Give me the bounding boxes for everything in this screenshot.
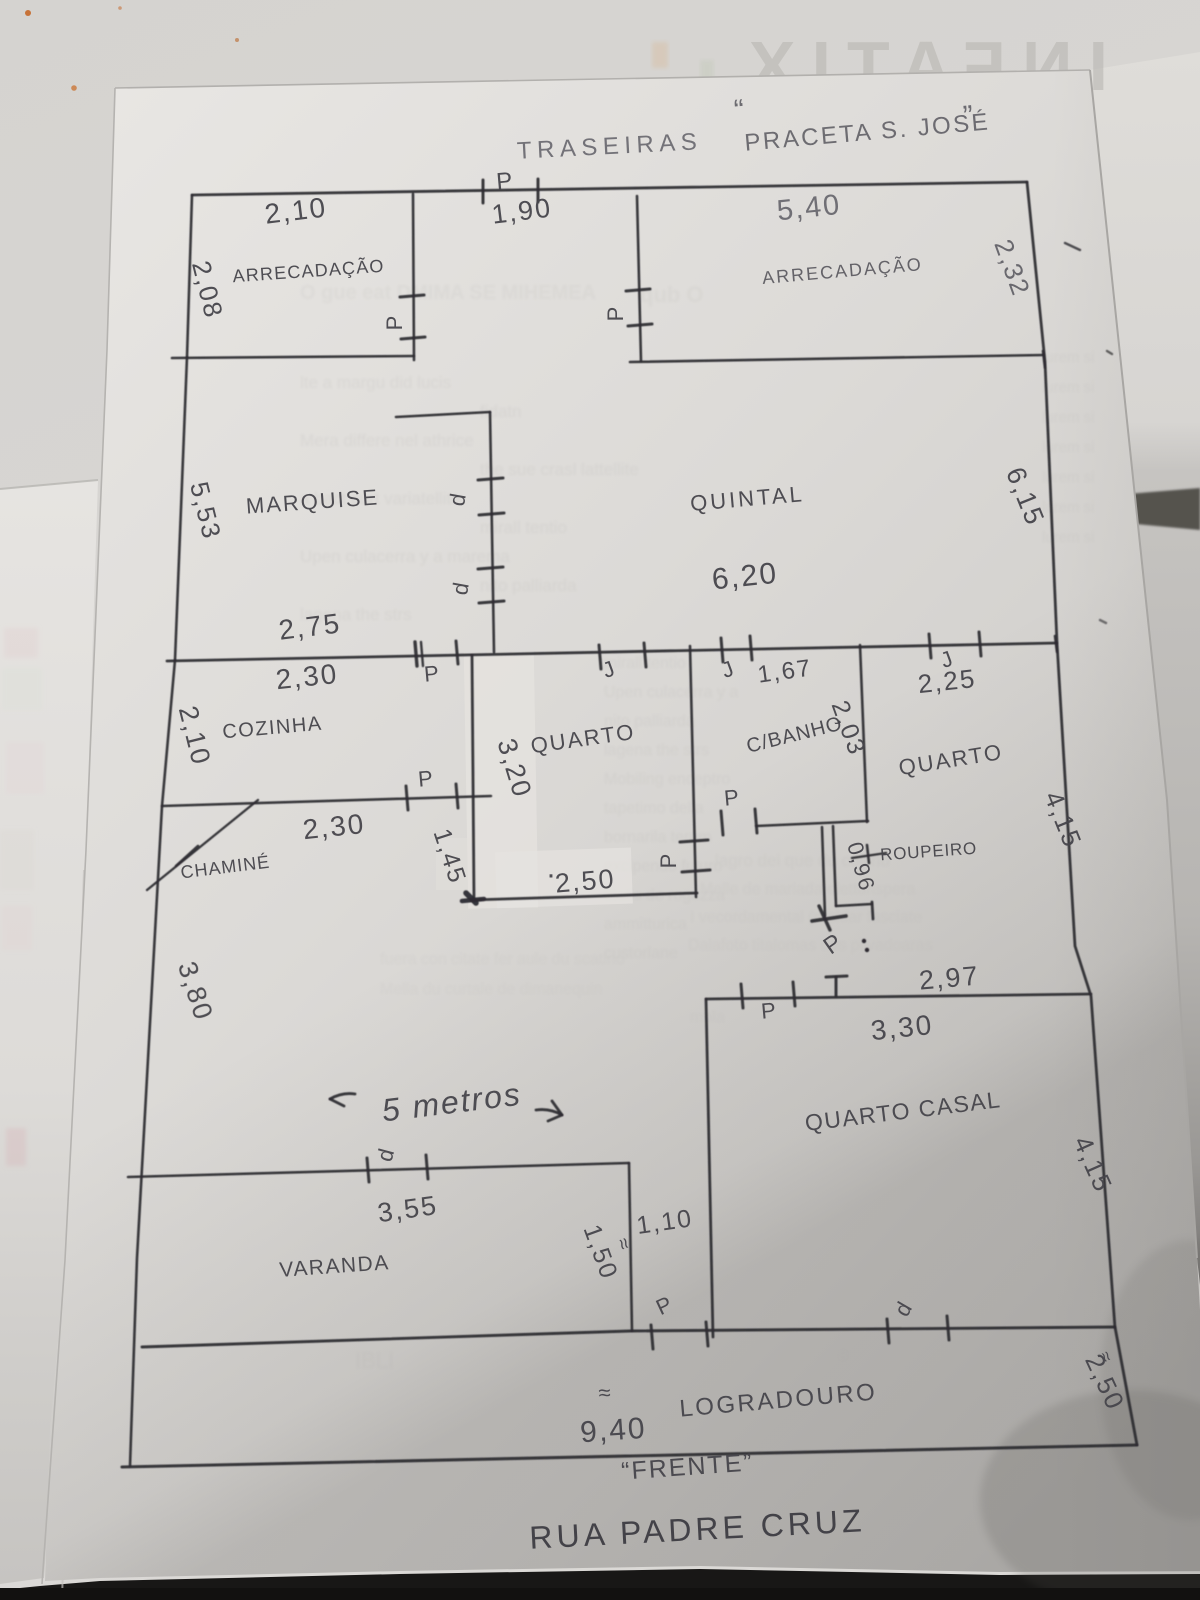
svg-text:P: P — [760, 997, 779, 1023]
svg-text:P: P — [382, 314, 407, 331]
svg-text:P: P — [656, 852, 681, 869]
svg-text:lurem si: lurem si — [1042, 349, 1095, 366]
svg-text:2,30: 2,30 — [301, 808, 366, 845]
svg-text:3,30: 3,30 — [869, 1009, 934, 1046]
svg-text:Upen culacerra y a: Upen culacerra y a — [604, 684, 738, 701]
svg-text:ammitturica: ammitturica — [604, 916, 687, 933]
svg-text:Mera differe nel athrice: Mera differe nel athrice — [300, 431, 474, 450]
svg-text:·: · — [546, 858, 558, 891]
svg-text:nito palliarda: nito palliarda — [480, 576, 577, 595]
svg-text:2,97: 2,97 — [918, 960, 981, 995]
svg-text:P: P — [603, 305, 628, 322]
svg-text:Melle de mariada eletturispera: Melle de mariada eletturispera — [700, 881, 915, 898]
svg-text:5,40: 5,40 — [775, 189, 842, 228]
svg-text:lurem si: lurem si — [1042, 379, 1095, 396]
svg-text:the sue crasl lattellite: the sue crasl lattellite — [480, 460, 639, 479]
svg-text:6,20: 6,20 — [710, 557, 779, 597]
svg-text:IBLI: IBLI — [355, 1348, 394, 1373]
svg-text:≈: ≈ — [598, 1380, 614, 1406]
svg-text:Mella du curtale de dimanequin: Mella du curtale de dimanequin — [380, 981, 602, 998]
svg-text:I vecordamental (moldar fascia: I vecordamental (moldar fasciate — [690, 909, 922, 926]
svg-text:qub O: qub O — [640, 282, 704, 307]
svg-text:2,50: 2,50 — [554, 863, 617, 898]
svg-text:fuera con citate fer aule du s: fuera con citate fer aule du scatino — [380, 951, 625, 968]
svg-text:lurem si: lurem si — [1042, 409, 1095, 426]
svg-text:Mobiling enceptro: Mobiling enceptro — [604, 771, 730, 788]
svg-text:P: P — [723, 784, 742, 810]
svg-text:9,40: 9,40 — [579, 1412, 648, 1450]
svg-text:lte a margu did lucis: lte a margu did lucis — [300, 373, 451, 392]
svg-text:tapetimo della: tapetimo della — [604, 800, 704, 817]
svg-text:Dalafoto titalomas dos pilvado: Dalafoto titalomas dos pilvadoaras — [688, 937, 933, 954]
svg-text:P: P — [417, 765, 436, 791]
svg-text:2,30: 2,30 — [274, 658, 339, 695]
svg-text:P: P — [423, 660, 442, 686]
svg-text:lurem si: lurem si — [1042, 529, 1095, 546]
svg-text:P: P — [495, 167, 515, 195]
svg-text:o: o — [838, 1344, 848, 1364]
svg-text:Upen culacerra y a marema: Upen culacerra y a marema — [300, 547, 510, 566]
svg-text:O gue eat DMIMA SE MIHEMEA: O gue eat DMIMA SE MIHEMEA — [300, 282, 596, 304]
